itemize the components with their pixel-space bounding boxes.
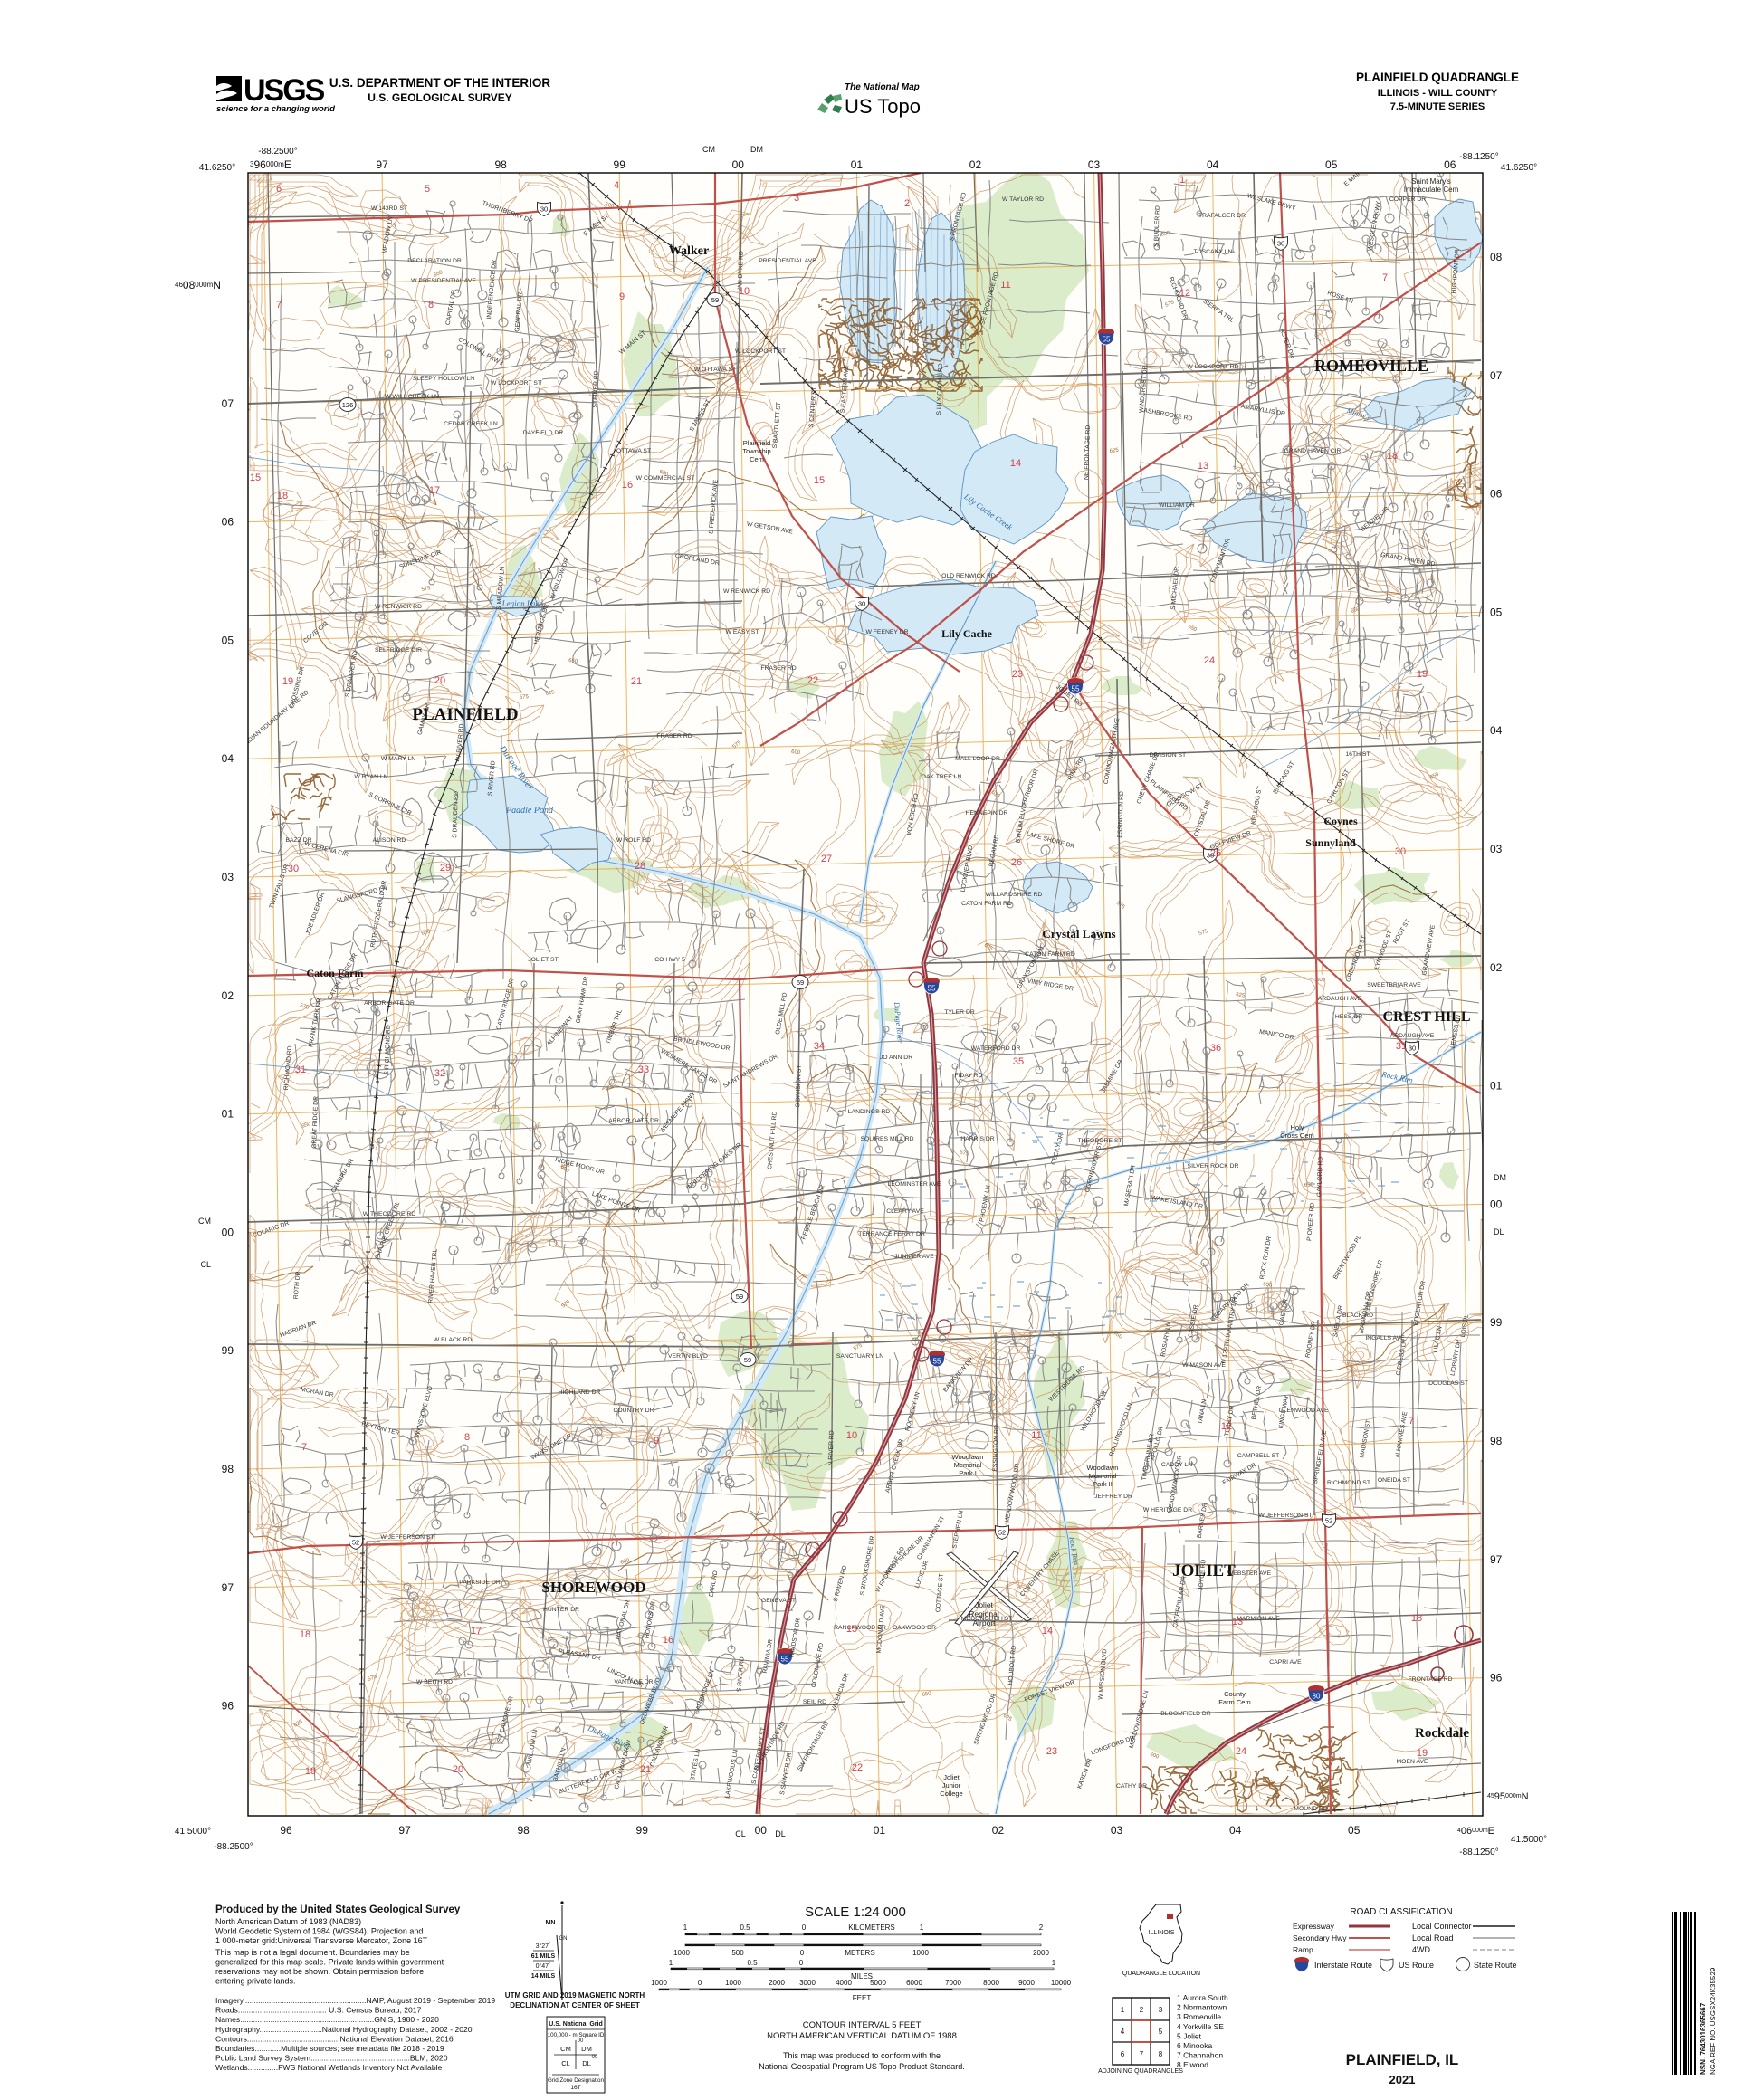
svg-text:05: 05 (1348, 1824, 1361, 1837)
svg-text:Junior: Junior (942, 1781, 961, 1790)
svg-text:DAYFIELD DR: DAYFIELD DR (523, 430, 564, 436)
svg-text:Cem: Cem (750, 455, 764, 463)
svg-text:1000: 1000 (912, 1949, 929, 1957)
svg-text:Local Connector: Local Connector (1412, 1922, 1472, 1931)
svg-text:BLACK RD: BLACK RD (1342, 1312, 1373, 1319)
svg-text:DL: DL (1494, 1227, 1504, 1236)
svg-text:COPPER DR: COPPER DR (1389, 196, 1427, 203)
svg-text:Contours......................: Contours................................… (215, 2034, 454, 2043)
svg-text:5: 5 (1159, 2028, 1163, 2036)
svg-text:19: 19 (1417, 669, 1428, 680)
svg-text:10000: 10000 (1051, 1979, 1072, 1987)
svg-text:00: 00 (1490, 1198, 1503, 1210)
svg-text:650: 650 (1304, 1182, 1314, 1188)
svg-text:ARBOR GATE DR: ARBOR GATE DR (608, 1118, 659, 1124)
svg-text:21: 21 (640, 1764, 651, 1775)
svg-text:8 Elwood: 8 Elwood (1177, 2060, 1208, 2069)
svg-text:1: 1 (920, 1923, 924, 1932)
svg-text:97: 97 (376, 158, 388, 171)
svg-text:MALL LOOP DR: MALL LOOP DR (955, 756, 1000, 762)
svg-text:Hydrography...................: Hydrography.............................… (215, 2025, 473, 2034)
svg-text:STEINER RD: STEINER RD (592, 370, 599, 407)
svg-text:98: 98 (1490, 1435, 1503, 1447)
svg-text:0: 0 (698, 1979, 702, 1987)
svg-text:SILVER ROCK DR: SILVER ROCK DR (1188, 1163, 1239, 1169)
svg-text:Saint Mary's: Saint Mary's (1411, 177, 1451, 186)
svg-text:59: 59 (797, 978, 804, 987)
svg-text:CL: CL (735, 1829, 746, 1838)
svg-text:DECLARATION DR: DECLARATION DR (407, 258, 462, 264)
svg-text:99: 99 (222, 1344, 234, 1357)
svg-text:61 MILS: 61 MILS (531, 1953, 556, 1960)
svg-text:01: 01 (874, 1824, 886, 1837)
svg-text:Interstate Route: Interstate Route (1314, 1961, 1372, 1970)
svg-text:W RENWICK RD: W RENWICK RD (375, 604, 422, 610)
svg-text:This map is not a legal docume: This map is not a legal document. Bounda… (215, 1948, 410, 1957)
svg-text:N RIVER RD: N RIVER RD (827, 1430, 835, 1466)
svg-text:W WILL CREEK LN: W WILL CREEK LN (385, 394, 439, 400)
svg-text:7: 7 (276, 300, 282, 310)
svg-text:20: 20 (453, 1764, 463, 1775)
svg-text:Woodlawn: Woodlawn (952, 1453, 984, 1461)
svg-text:17: 17 (429, 485, 440, 496)
svg-text:59: 59 (711, 296, 719, 304)
svg-text:RANCHWOOD DR: RANCHWOOD DR (834, 1625, 886, 1631)
svg-text:JOLIET ST: JOLIET ST (528, 957, 559, 963)
svg-text:HENNEPIN DR: HENNEPIN DR (966, 810, 1008, 816)
svg-text:W TAYLOR RD: W TAYLOR RD (1002, 196, 1044, 203)
svg-text:Boundaries............Multiple: Boundaries............Multiple sources; … (215, 2044, 444, 2053)
svg-text:FRASER RD: FRASER RD (656, 733, 692, 740)
svg-text:-88.1250°: -88.1250° (1459, 152, 1498, 162)
svg-text:Memorial: Memorial (1089, 1472, 1117, 1480)
svg-text:98: 98 (517, 1824, 530, 1837)
svg-text:00: 00 (578, 2038, 584, 2044)
svg-text:0.5: 0.5 (747, 1959, 758, 1967)
svg-text:30: 30 (288, 864, 299, 874)
svg-text:METERS: METERS (845, 1949, 874, 1957)
svg-text:1: 1 (1052, 1959, 1056, 1967)
svg-text:17: 17 (471, 1626, 482, 1637)
svg-text:03: 03 (1490, 843, 1503, 855)
svg-text:VERTIN BLVD: VERTIN BLVD (668, 1353, 708, 1360)
svg-text:5: 5 (425, 184, 430, 195)
svg-text:24: 24 (1236, 1746, 1246, 1757)
svg-text:USGS: USGS (244, 73, 325, 108)
svg-text:34: 34 (814, 1041, 825, 1052)
svg-text:30: 30 (858, 600, 865, 608)
svg-text:DM: DM (581, 2045, 592, 2053)
svg-text:Expressway: Expressway (1293, 1922, 1335, 1931)
svg-text:26: 26 (1011, 857, 1022, 868)
svg-text:13: 13 (1232, 1617, 1243, 1627)
svg-text:22: 22 (807, 675, 818, 686)
svg-text:7: 7 (1409, 1416, 1414, 1427)
svg-text:4000: 4000 (836, 1979, 852, 1987)
svg-text:reservations may not be shown.: reservations may not be shown. Obtain pe… (215, 1967, 424, 1976)
svg-text:OAK TREE LN: OAK TREE LN (922, 774, 962, 780)
svg-text:MN: MN (546, 1920, 556, 1926)
svg-text:03: 03 (1111, 1824, 1123, 1837)
svg-text:WILLARDSHIRE RD: WILLARDSHIRE RD (986, 892, 1043, 898)
svg-text:99: 99 (614, 158, 626, 171)
svg-text:HIGHLAND DR: HIGHLAND DR (559, 1389, 601, 1396)
svg-text:11: 11 (1000, 280, 1010, 291)
svg-text:7000: 7000 (945, 1979, 961, 1987)
svg-text:07: 07 (1490, 369, 1503, 382)
svg-text:Names.........................: Names...................................… (215, 2015, 439, 2024)
svg-text:13: 13 (1198, 461, 1208, 472)
svg-text:FRASER RD: FRASER RD (760, 665, 796, 672)
svg-text:30: 30 (540, 205, 548, 214)
svg-text:55: 55 (1072, 685, 1080, 693)
svg-text:SEIL RD: SEIL RD (803, 1699, 826, 1705)
svg-text:30: 30 (1409, 1045, 1416, 1053)
svg-text:W RYAN LN: W RYAN LN (354, 774, 387, 780)
svg-text:CAPRI AVE: CAPRI AVE (1269, 1659, 1302, 1666)
svg-text:00: 00 (222, 1226, 234, 1238)
svg-text:6: 6 (276, 184, 282, 195)
svg-text:CM: CM (702, 145, 715, 154)
svg-text:36: 36 (1210, 1043, 1221, 1054)
svg-text:8: 8 (428, 300, 434, 310)
svg-text:JEFFREY DR: JEFFREY DR (1094, 1494, 1132, 1500)
svg-text:3: 3 (794, 193, 799, 204)
svg-text:DL: DL (775, 1829, 786, 1838)
svg-text:1000: 1000 (673, 1949, 690, 1957)
svg-text:GRAND HAVEN CIR: GRAND HAVEN CIR (1284, 448, 1342, 454)
svg-text:06: 06 (1444, 158, 1456, 171)
svg-text:600: 600 (791, 749, 801, 756)
svg-text:Walker: Walker (669, 244, 709, 258)
svg-text:INGALLS AVE: INGALLS AVE (1365, 1335, 1405, 1341)
svg-text:OTTAWA ST: OTTAWA ST (616, 448, 651, 454)
svg-text:MOUND RD: MOUND RD (1294, 1806, 1327, 1812)
svg-text:31: 31 (295, 1064, 306, 1075)
svg-text:W JEFFERSON ST: W JEFFERSON ST (1258, 1513, 1312, 1519)
svg-text:3000: 3000 (799, 1979, 816, 1987)
svg-text:FIDAY RD: FIDAY RD (954, 1073, 982, 1079)
svg-text:02: 02 (222, 989, 234, 1002)
svg-text:2: 2 (1039, 1923, 1044, 1932)
svg-text:18: 18 (277, 491, 288, 501)
svg-text:-88.1250°: -88.1250° (1459, 1847, 1498, 1857)
svg-text:07: 07 (222, 397, 234, 410)
svg-text:Sunnyland: Sunnyland (1305, 836, 1356, 849)
svg-text:National Geospatial Program US: National Geospatial Program US Topo Prod… (759, 2062, 964, 2071)
svg-text:WILLIAM DR: WILLIAM DR (1159, 502, 1195, 509)
svg-text:16T: 16T (570, 2085, 580, 2091)
svg-text:SQUIRES MILL RD: SQUIRES MILL RD (860, 1136, 913, 1142)
svg-text:4WD: 4WD (1412, 1945, 1431, 1954)
svg-text:7 Channahon: 7 Channahon (1177, 2051, 1223, 2060)
svg-text:04: 04 (1207, 158, 1219, 171)
svg-text:97: 97 (1490, 1553, 1503, 1566)
svg-text:US Topo: US Topo (845, 95, 921, 118)
svg-text:96: 96 (222, 1700, 234, 1713)
svg-text:This map was produced to confo: This map was produced to conform with th… (783, 2051, 941, 2060)
svg-text:15: 15 (846, 1624, 857, 1635)
svg-text:SELFRIDGE CIR: SELFRIDGE CIR (375, 647, 422, 654)
svg-text:GENEVA ST: GENEVA ST (761, 1598, 796, 1604)
svg-text:126: 126 (342, 401, 354, 409)
svg-text:33: 33 (638, 1064, 649, 1075)
svg-text:14 MILS: 14 MILS (531, 1973, 556, 1980)
svg-text:27: 27 (821, 854, 832, 864)
svg-text:2: 2 (1140, 2006, 1144, 2014)
svg-text:2021: 2021 (1389, 2073, 1416, 2086)
svg-text:HESS DR: HESS DR (1335, 1014, 1362, 1020)
svg-text:00: 00 (732, 158, 745, 171)
svg-text:04: 04 (1229, 1824, 1242, 1837)
svg-text:W EASY ST: W EASY ST (726, 629, 759, 635)
svg-text:1: 1 (669, 1959, 673, 1967)
svg-text:TYLER DR: TYLER DR (944, 1009, 975, 1016)
svg-text:CM: CM (560, 2045, 571, 2053)
svg-text:TERRANCE FERRY DR: TERRANCE FERRY DR (858, 1231, 925, 1237)
svg-text:02: 02 (992, 1824, 1005, 1837)
svg-text:W RENWICK RD: W RENWICK RD (723, 588, 770, 595)
svg-text:The National Map: The National Map (845, 82, 920, 92)
svg-text:TUSCANY LN: TUSCANY LN (1194, 249, 1233, 255)
svg-text:Ramp: Ramp (1293, 1945, 1313, 1954)
svg-text:DL: DL (582, 2059, 591, 2067)
svg-text:ILLINOIS: ILLINOIS (1149, 1930, 1175, 1936)
svg-text:29: 29 (440, 863, 451, 873)
svg-text:W PRESIDENTIAL AVE: W PRESIDENTIAL AVE (411, 278, 476, 284)
svg-text:OAKWOOD DR: OAKWOOD DR (893, 1625, 936, 1631)
svg-text:19: 19 (305, 1766, 316, 1777)
svg-text:41.6250°: 41.6250° (199, 163, 235, 173)
svg-text:W MASON AVE: W MASON AVE (1182, 1362, 1226, 1369)
svg-text:PLAINFIELD, IL: PLAINFIELD, IL (1346, 2051, 1459, 2068)
svg-text:24: 24 (1204, 655, 1215, 666)
svg-text:Township: Township (742, 447, 770, 455)
svg-text:100,000 - m Square ID: 100,000 - m Square ID (548, 2032, 605, 2038)
svg-text:01: 01 (1490, 1080, 1503, 1093)
svg-text:CM: CM (198, 1217, 211, 1226)
svg-text:2000: 2000 (769, 1979, 785, 1987)
svg-text:generalized for this map scale: generalized for this map scale. Private … (215, 1958, 444, 1967)
svg-text:20: 20 (434, 675, 445, 686)
svg-text:W FEENEY DR: W FEENEY DR (865, 629, 908, 635)
svg-text:Legion Lake: Legion Lake (501, 599, 543, 608)
svg-text:CO HWY 5: CO HWY 5 (654, 957, 685, 963)
svg-text:LANDINGS RD: LANDINGS RD (848, 1109, 891, 1115)
svg-text:Wetlands..............FWS Nati: Wetlands..............FWS National Wetla… (215, 2063, 443, 2072)
svg-text:ROMEOVILLE: ROMEOVILLE (1314, 357, 1428, 375)
svg-text:55: 55 (928, 985, 936, 993)
svg-text:1: 1 (1121, 2006, 1125, 2014)
svg-text:00: 00 (755, 1824, 768, 1837)
svg-text:ARDAUGH AVE: ARDAUGH AVE (1390, 1033, 1435, 1039)
svg-text:2 Normantown: 2 Normantown (1177, 2003, 1227, 2012)
svg-text:Cross Cem: Cross Cem (1280, 1131, 1314, 1140)
svg-text:SWEETBRIAR AVE: SWEETBRIAR AVE (1367, 982, 1421, 988)
svg-text:05: 05 (222, 634, 234, 646)
svg-text:SCALE 1:24 000: SCALE 1:24 000 (805, 1904, 906, 1920)
svg-text:Lily Cache: Lily Cache (941, 627, 992, 640)
svg-text:23: 23 (1012, 669, 1023, 680)
svg-text:Coynes: Coynes (1323, 815, 1358, 827)
svg-text:31: 31 (1396, 1041, 1407, 1052)
svg-text:ADJOINING QUADRANGLES: ADJOINING QUADRANGLES (1098, 2068, 1183, 2075)
svg-text:59: 59 (744, 1356, 751, 1364)
svg-text:U.S. National Grid: U.S. National Grid (549, 2021, 603, 2028)
svg-text:Imagery.......................: Imagery.................................… (215, 1996, 495, 2005)
svg-text:97: 97 (222, 1581, 234, 1594)
svg-text:14: 14 (1042, 1626, 1053, 1637)
svg-text:4: 4 (1121, 2028, 1125, 2036)
svg-text:JO ANN DR: JO ANN DR (880, 1055, 912, 1061)
svg-text:DM: DM (750, 145, 763, 154)
svg-text:NGA REF NO. USGSX24K35529: NGA REF NO. USGSX24K35529 (1709, 1967, 1717, 2075)
svg-text:Immaculate Cem: Immaculate Cem (1404, 186, 1459, 194)
svg-text:55: 55 (1103, 336, 1111, 344)
svg-text:FRONTAGE RD: FRONTAGE RD (1409, 1676, 1453, 1683)
svg-text:1 000-meter grid:Universal Tra: 1 000-meter grid:Universal Transverse Me… (215, 1936, 428, 1945)
svg-text:W 143RD ST: W 143RD ST (371, 205, 407, 212)
svg-text:LEOMINSTER AVE: LEOMINSTER AVE (888, 1181, 941, 1188)
svg-text:Park I: Park I (959, 1469, 977, 1477)
svg-text:US Route: US Route (1399, 1961, 1434, 1970)
svg-text:WATERFORD DR: WATERFORD DR (971, 1045, 1021, 1052)
svg-text:W OTTAWA ST: W OTTAWA ST (694, 367, 737, 373)
svg-text:entering private lands.: entering private lands. (215, 1977, 296, 1986)
svg-text:5 Joliet: 5 Joliet (1177, 2031, 1202, 2040)
svg-text:7: 7 (301, 1442, 307, 1453)
svg-text:05: 05 (1490, 606, 1503, 618)
svg-text:PARKSIDE DR: PARKSIDE DR (459, 1580, 501, 1586)
svg-text:30: 30 (1395, 846, 1406, 857)
svg-text:06: 06 (222, 516, 234, 529)
svg-text:CLEARY AVE: CLEARY AVE (886, 1208, 924, 1215)
svg-text:CATON FARM RD: CATON FARM RD (961, 901, 1012, 907)
svg-text:WEBSTER AVE: WEBSTER AVE (1227, 1570, 1272, 1577)
svg-text:SANCTUARY LN: SANCTUARY LN (836, 1353, 883, 1360)
svg-text:Local Road: Local Road (1412, 1933, 1454, 1942)
svg-text:15: 15 (250, 472, 261, 483)
svg-text:Joliet: Joliet (943, 1773, 960, 1781)
svg-text:12: 12 (1179, 288, 1190, 299)
svg-text:1000: 1000 (651, 1979, 667, 1987)
svg-text:18: 18 (300, 1629, 310, 1640)
svg-text:Produced by the United States: Produced by the United States Geological… (215, 1904, 461, 1915)
svg-text:11: 11 (1031, 1430, 1041, 1441)
svg-text:HUNTER DR: HUNTER DR (543, 1607, 579, 1613)
svg-text:03: 03 (222, 871, 234, 883)
svg-text:CL: CL (200, 1260, 211, 1269)
svg-text:DM: DM (1494, 1173, 1506, 1182)
svg-text:8: 8 (1159, 2050, 1163, 2058)
svg-text:1: 1 (1179, 175, 1185, 186)
svg-text:JUNIPER AVE: JUNIPER AVE (894, 1254, 934, 1260)
svg-text:2: 2 (904, 198, 910, 209)
svg-text:-88.2500°: -88.2500° (214, 1842, 253, 1852)
svg-text:12: 12 (1221, 1421, 1232, 1432)
svg-text:7: 7 (1382, 272, 1388, 283)
svg-text:08: 08 (1490, 251, 1503, 263)
svg-text:96: 96 (280, 1824, 292, 1837)
svg-text:52: 52 (998, 1529, 1006, 1537)
svg-text:BLOOMFIELD DR: BLOOMFIELD DR (1160, 1711, 1211, 1717)
svg-text:9: 9 (619, 291, 625, 302)
svg-text:Paddle Pond: Paddle Pond (505, 806, 554, 816)
svg-text:PRESIDENTIAL AVE: PRESIDENTIAL AVE (759, 258, 816, 264)
svg-text:96: 96 (1490, 1672, 1503, 1685)
svg-text:02: 02 (1490, 961, 1503, 974)
svg-text:21: 21 (631, 676, 642, 687)
svg-text:59: 59 (736, 1293, 743, 1301)
svg-text:1000: 1000 (725, 1979, 741, 1987)
svg-text:DECLINATION AT CENTER OF SHEET: DECLINATION AT CENTER OF SHEET (510, 2001, 640, 2009)
svg-text:4 Yorkville SE: 4 Yorkville SE (1177, 2022, 1224, 2031)
svg-text:28: 28 (635, 861, 645, 872)
svg-text:0: 0 (799, 1959, 804, 1967)
svg-text:575: 575 (520, 694, 530, 701)
svg-text:Caton Farm: Caton Farm (307, 967, 364, 979)
svg-text:FEET: FEET (853, 1994, 872, 2002)
svg-text:18: 18 (1411, 1613, 1422, 1624)
svg-text:8000: 8000 (983, 1979, 999, 1987)
svg-text:7: 7 (1140, 2050, 1144, 2058)
svg-text:College: College (940, 1790, 962, 1798)
svg-text:U.S. GEOLOGICAL SURVEY: U.S. GEOLOGICAL SURVEY (368, 91, 512, 104)
svg-text:15: 15 (814, 475, 825, 486)
svg-text:W LOCKPORT ST: W LOCKPORT ST (735, 348, 786, 355)
svg-text:science for a changing world: science for a changing world (216, 104, 335, 114)
svg-text:Plainfield: Plainfield (743, 439, 770, 447)
svg-text:01: 01 (222, 1108, 234, 1121)
svg-text:01: 01 (851, 158, 864, 171)
svg-text:W HERITAGE DR: W HERITAGE DR (1143, 1507, 1192, 1513)
svg-text:Park II: Park II (1093, 1480, 1113, 1488)
svg-text:CL: CL (561, 2059, 570, 2067)
svg-text:MARMION AVE: MARMION AVE (1237, 1616, 1280, 1622)
svg-text:HARRIS DR: HARRIS DR (960, 1136, 994, 1142)
svg-text:CATON FARM RD: CATON FARM RD (1025, 951, 1075, 958)
svg-text:32: 32 (434, 1068, 445, 1079)
svg-text:PLAINFIELD QUADRANGLE: PLAINFIELD QUADRANGLE (1356, 71, 1519, 84)
svg-text:3: 3 (1159, 2006, 1163, 2014)
svg-text:ALISON RD: ALISON RD (373, 837, 406, 844)
svg-text:10: 10 (739, 286, 750, 297)
svg-text:CONTOUR INTERVAL 5 FEET: CONTOUR INTERVAL 5 FEET (803, 2020, 922, 2030)
svg-text:CEDAR CREEK LN: CEDAR CREEK LN (444, 421, 498, 427)
svg-text:41.6250°: 41.6250° (1501, 163, 1537, 173)
svg-text:7.5-MINUTE SERIES: 7.5-MINUTE SERIES (1390, 101, 1485, 112)
svg-text:0.5: 0.5 (740, 1923, 750, 1932)
svg-text:North American Datum of 1983 (: North American Datum of 1983 (NAD83) (215, 1917, 361, 1926)
svg-text:NORTH AMERICAN VERTICAL DATUM: NORTH AMERICAN VERTICAL DATUM OF 1988 (767, 2031, 957, 2041)
svg-text:W COMMERCIAL ST: W COMMERCIAL ST (636, 475, 695, 482)
svg-text:W BEITH RD: W BEITH RD (416, 1679, 453, 1685)
svg-text:SLEEPY HOLLOW LN: SLEEPY HOLLOW LN (413, 376, 474, 382)
svg-text:County: County (1224, 1690, 1246, 1698)
svg-text:99: 99 (1490, 1316, 1503, 1329)
svg-text:NSN. 7643016365667: NSN. 7643016365667 (1699, 2002, 1707, 2075)
svg-text:Crystal Lawns: Crystal Lawns (1042, 927, 1115, 940)
svg-text:0°47´: 0°47´ (536, 1962, 551, 1970)
svg-text:Holy: Holy (1290, 1123, 1303, 1131)
svg-text:0: 0 (800, 1949, 805, 1957)
svg-text:ARBOR GATE DR: ARBOR GATE DR (364, 1000, 415, 1007)
svg-text:03: 03 (1088, 158, 1101, 171)
svg-text:8: 8 (464, 1432, 470, 1443)
svg-text:98: 98 (494, 158, 507, 171)
svg-text:CATHY DR: CATHY DR (1116, 1783, 1147, 1790)
svg-text:KILOMETERS: KILOMETERS (848, 1923, 895, 1932)
